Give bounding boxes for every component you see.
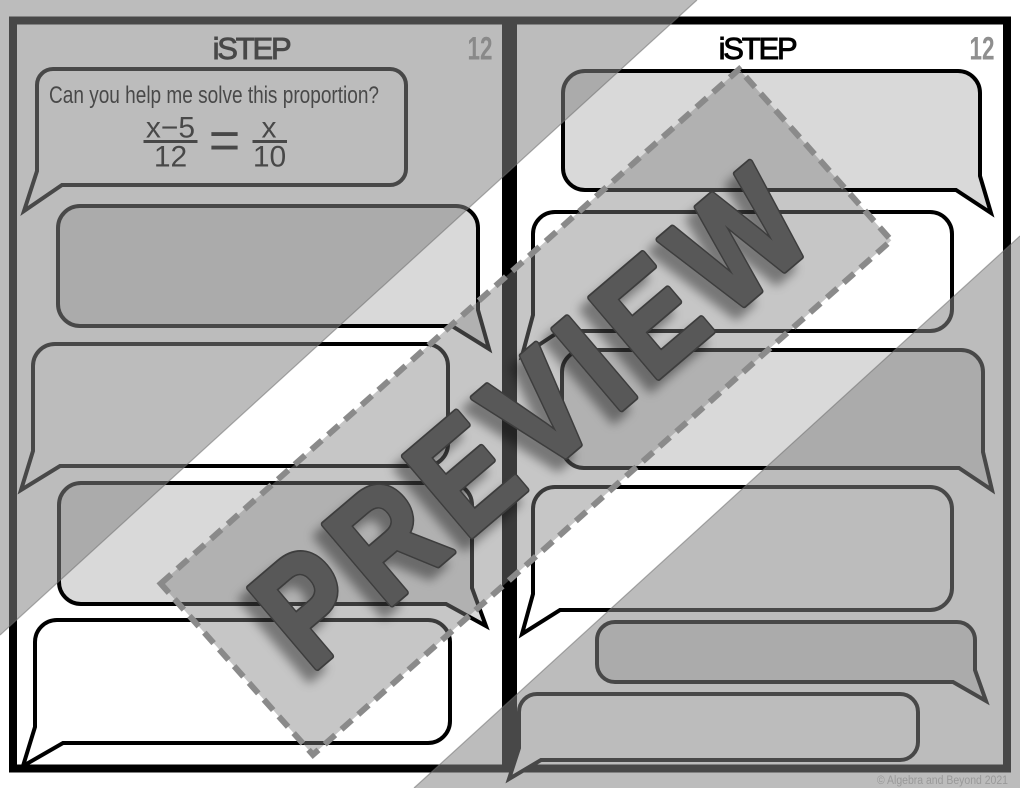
svg-text:iSTEP: iSTEP	[719, 31, 797, 66]
svg-text:12: 12	[970, 31, 995, 67]
